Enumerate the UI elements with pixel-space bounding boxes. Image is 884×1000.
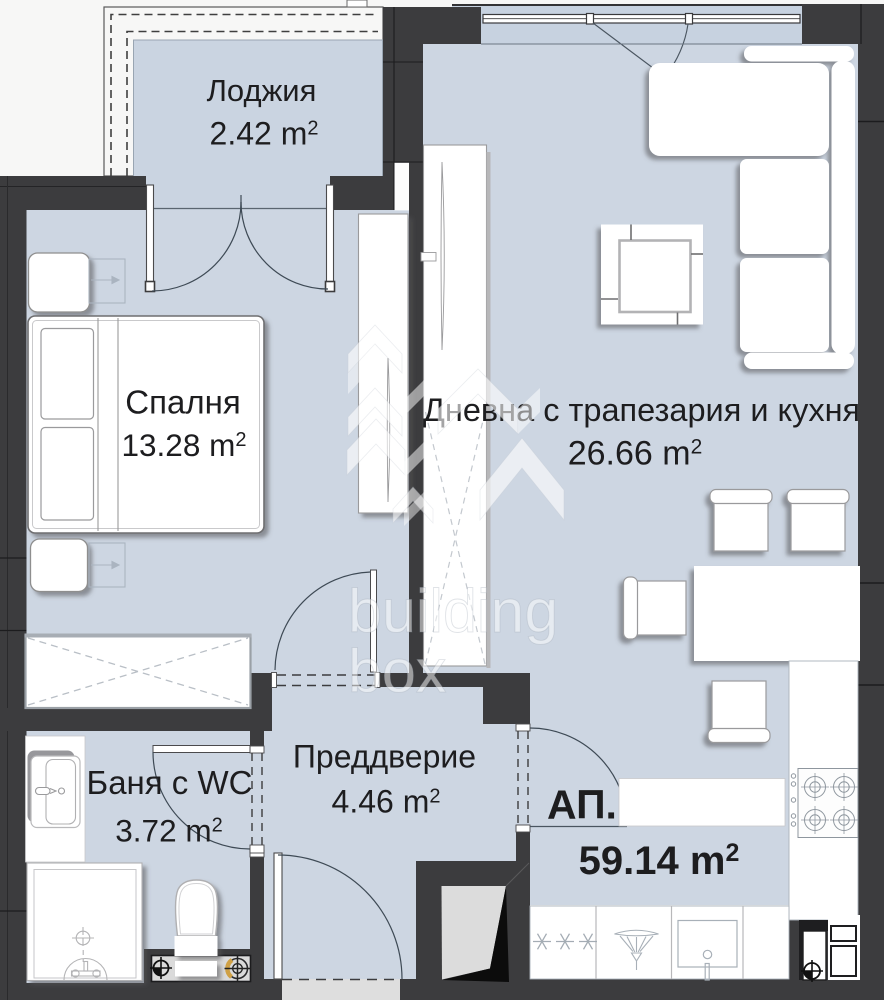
- svg-text:box: box: [348, 637, 446, 705]
- svg-text:59.14 m2: 59.14 m2: [579, 839, 740, 883]
- svg-text:АП.: АП.: [547, 782, 617, 828]
- svg-text:Преддверие: Преддверие: [293, 738, 476, 774]
- svg-text:Баня с WC: Баня с WC: [87, 764, 253, 801]
- svg-text:Спалня: Спалня: [125, 384, 240, 421]
- svg-text:3.72 m2: 3.72 m2: [115, 813, 222, 849]
- svg-text:Лоджия: Лоджия: [207, 73, 317, 108]
- svg-text:building: building: [348, 577, 558, 645]
- svg-text:2.42 m2: 2.42 m2: [210, 115, 319, 151]
- svg-text:26.66 m2: 26.66 m2: [568, 434, 703, 472]
- svg-text:13.28 m2: 13.28 m2: [122, 427, 247, 463]
- svg-text:4.46 m2: 4.46 m2: [332, 783, 441, 819]
